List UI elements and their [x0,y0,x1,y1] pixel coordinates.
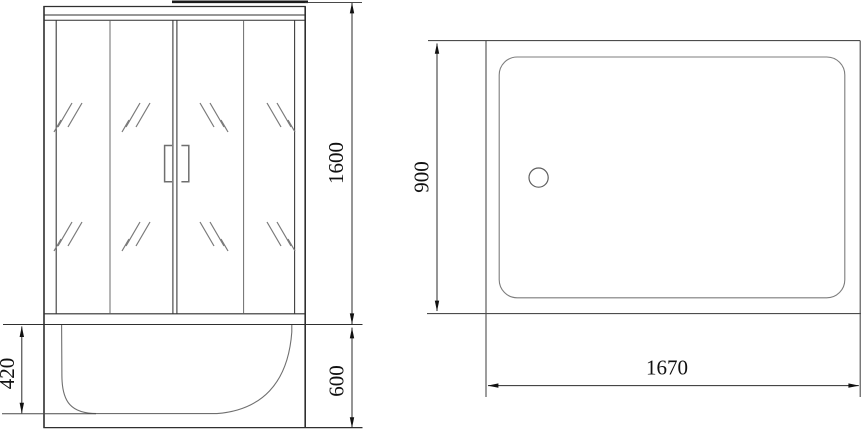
left-door-handle [165,146,172,182]
dimension-label-tray-height: 600 [325,365,349,397]
reflection-mark-slash [54,222,82,251]
dimension-label-tray-inner-height: 420 [0,358,19,390]
arrowhead-down [350,313,354,324]
arrowhead-up [20,326,24,337]
tray-outer-rect [427,41,861,397]
arrowhead-up [350,3,354,14]
dimension-900: 900 [409,43,439,311]
glass-doors [56,20,294,314]
dimension-1670: 1670 [488,356,860,388]
technical-drawing-page: 1600 600 420 900 [0,0,862,431]
arrowhead-up [350,328,354,339]
reflection-mark-slash [122,103,150,132]
dimension-label-depth: 900 [409,161,433,193]
tray-inner-rect [499,57,845,298]
arrowhead-down [435,301,439,312]
dimension-420: 420 [0,326,24,413]
arrowhead-down [20,403,24,414]
glass-reflection-marks [54,103,295,251]
reflection-mark-slash [54,103,82,132]
reflection-mark-slash [122,222,150,251]
top-view: 900 1670 [409,41,861,397]
dimension-1600: 1600 [324,3,354,325]
dimension-label-width: 1670 [646,356,688,380]
dimension-600: 600 [325,328,355,428]
reflection-mark-backslash [200,103,228,132]
arrowhead-down [350,417,354,428]
reflection-mark-backslash [267,103,295,132]
tray-front-profile [62,325,292,414]
reflection-mark-backslash [200,222,228,251]
reflection-mark-backslash [267,222,295,251]
arrowhead-right [848,383,859,387]
arrowhead-up [435,43,439,54]
dimension-label-door-height: 1600 [324,142,348,184]
right-door-handle [181,146,188,182]
drain-hole [529,168,548,187]
front-view: 1600 600 420 [0,2,363,428]
shower-cabin-technical-drawing: 1600 600 420 900 [0,0,862,431]
arrowhead-left [488,383,499,387]
cabin-frame [3,2,363,428]
